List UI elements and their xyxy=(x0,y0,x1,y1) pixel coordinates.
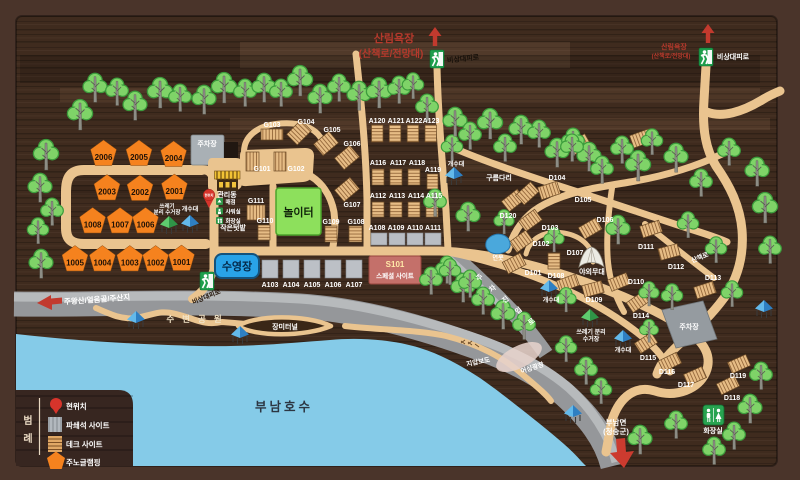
svg-text:A106: A106 xyxy=(325,282,342,289)
svg-text:G106: G106 xyxy=(343,141,360,148)
svg-text:A116: A116 xyxy=(370,160,386,167)
svg-text:G107: G107 xyxy=(343,202,360,209)
svg-text:개수대: 개수대 xyxy=(182,205,199,213)
svg-text:D116: D116 xyxy=(659,369,675,376)
svg-text:A119: A119 xyxy=(425,167,441,174)
svg-text:A118: A118 xyxy=(409,160,425,167)
svg-text:A107: A107 xyxy=(346,282,363,289)
svg-text:1006: 1006 xyxy=(137,221,155,230)
svg-text:산림욕장: 산림욕장 xyxy=(661,42,687,51)
svg-text:1003: 1003 xyxy=(121,259,139,268)
svg-text:D102: D102 xyxy=(533,241,550,248)
svg-text:G111: G111 xyxy=(248,198,264,205)
svg-text:D101: D101 xyxy=(525,270,542,277)
svg-text:D118: D118 xyxy=(724,395,740,402)
svg-text:A105: A105 xyxy=(304,282,321,289)
svg-text:G110: G110 xyxy=(257,218,274,225)
svg-text:D103: D103 xyxy=(542,225,559,232)
svg-text:G103: G103 xyxy=(263,122,280,129)
svg-text:수거장: 수거장 xyxy=(583,335,600,343)
svg-text:A111: A111 xyxy=(425,225,441,232)
svg-text:D105: D105 xyxy=(575,197,592,204)
svg-text:파쇄석 사이트: 파쇄석 사이트 xyxy=(66,420,110,430)
svg-text:쓰레기: 쓰레기 xyxy=(159,202,174,210)
svg-text:샤워실: 샤워실 xyxy=(226,208,241,216)
svg-text:현위치: 현위치 xyxy=(66,401,87,411)
svg-text:수영장: 수영장 xyxy=(222,259,252,273)
svg-text:개수대: 개수대 xyxy=(615,346,632,354)
svg-text:개수대: 개수대 xyxy=(543,296,560,304)
svg-text:부남면: 부남면 xyxy=(606,417,627,427)
svg-text:구름다리: 구름다리 xyxy=(486,173,512,182)
svg-text:A122: A122 xyxy=(406,118,423,125)
svg-text:A109: A109 xyxy=(388,225,405,232)
svg-text:1004: 1004 xyxy=(94,259,112,268)
svg-text:D104: D104 xyxy=(549,175,566,182)
svg-text:D114: D114 xyxy=(633,313,649,320)
svg-text:D120: D120 xyxy=(500,213,517,220)
svg-text:D119: D119 xyxy=(730,373,746,380)
svg-text:연못: 연못 xyxy=(492,254,504,262)
svg-text:1008: 1008 xyxy=(84,221,102,230)
svg-text:D112: D112 xyxy=(668,264,684,271)
svg-text:A114: A114 xyxy=(408,193,424,200)
svg-text:2004: 2004 xyxy=(165,154,183,163)
svg-text:D115: D115 xyxy=(640,355,656,362)
svg-text:부남호수: 부남호수 xyxy=(255,399,313,414)
svg-text:D110: D110 xyxy=(628,279,644,286)
svg-text:야외무대: 야외무대 xyxy=(579,267,605,276)
svg-text:2003: 2003 xyxy=(98,188,116,197)
svg-text:G102: G102 xyxy=(287,166,304,173)
svg-text:비상대피로: 비상대피로 xyxy=(717,52,750,61)
svg-text:A113: A113 xyxy=(389,193,405,200)
svg-text:2005: 2005 xyxy=(130,153,148,162)
svg-text:례: 례 xyxy=(23,432,32,445)
svg-text:G105: G105 xyxy=(323,127,340,134)
svg-text:2006: 2006 xyxy=(95,153,113,162)
svg-text:A120: A120 xyxy=(369,118,386,125)
svg-text:2002: 2002 xyxy=(131,188,149,197)
svg-text:A121: A121 xyxy=(388,118,405,125)
svg-text:데크 사이트: 데크 사이트 xyxy=(66,439,103,449)
svg-text:매점: 매점 xyxy=(226,198,236,206)
svg-text:G108: G108 xyxy=(347,219,364,226)
svg-text:G109: G109 xyxy=(322,219,339,226)
svg-text:주노글램핑: 주노글램핑 xyxy=(66,457,101,467)
svg-text:장미터널: 장미터널 xyxy=(272,322,298,331)
svg-text:1001: 1001 xyxy=(173,258,191,267)
svg-text:2001: 2001 xyxy=(166,187,184,196)
svg-text:A112: A112 xyxy=(370,193,386,200)
svg-text:A104: A104 xyxy=(283,282,300,289)
svg-text:A123: A123 xyxy=(423,118,440,125)
svg-text:A103: A103 xyxy=(262,282,279,289)
svg-text:화장실: 화장실 xyxy=(226,217,241,225)
svg-text:(산책로/전망대): (산책로/전망대) xyxy=(359,47,424,60)
svg-text:S101: S101 xyxy=(386,260,405,269)
svg-text:A108: A108 xyxy=(369,225,386,232)
svg-text:D111: D111 xyxy=(638,244,654,251)
svg-text:산림욕장: 산림욕장 xyxy=(374,31,414,45)
svg-text:쓰레기 분리: 쓰레기 분리 xyxy=(576,328,605,336)
svg-text:A110: A110 xyxy=(407,225,423,232)
svg-text:(청송군): (청송군) xyxy=(603,426,629,436)
svg-text:D109: D109 xyxy=(586,297,603,304)
svg-text:주차장: 주차장 xyxy=(197,139,217,148)
svg-text:D106: D106 xyxy=(597,217,614,224)
svg-text:1007: 1007 xyxy=(111,221,129,230)
svg-text:A115: A115 xyxy=(426,193,442,200)
svg-text:D107: D107 xyxy=(567,250,584,257)
svg-text:화장실: 화장실 xyxy=(703,426,722,435)
svg-text:현위치: 현위치 xyxy=(205,193,214,198)
svg-text:범: 범 xyxy=(23,414,32,427)
svg-text:1002: 1002 xyxy=(147,259,165,268)
svg-text:분리 수거장: 분리 수거장 xyxy=(154,208,181,216)
svg-text:개수대: 개수대 xyxy=(448,160,465,168)
svg-text:놀이터: 놀이터 xyxy=(283,205,313,219)
svg-text:관리동: 관리동 xyxy=(217,190,237,199)
svg-text:A117: A117 xyxy=(390,160,406,167)
svg-text:(산책로/전망대): (산책로/전망대) xyxy=(652,52,691,60)
svg-text:G101: G101 xyxy=(253,166,270,173)
svg-text:수변공원: 수변공원 xyxy=(166,314,229,324)
svg-text:스페셜 사이트: 스페셜 사이트 xyxy=(376,271,414,280)
svg-text:G104: G104 xyxy=(297,119,314,126)
svg-text:주차장: 주차장 xyxy=(679,322,699,331)
svg-text:D113: D113 xyxy=(705,275,721,282)
svg-text:1005: 1005 xyxy=(66,259,84,268)
svg-text:D117: D117 xyxy=(678,382,694,389)
svg-text:작은텃밭: 작은텃밭 xyxy=(220,223,246,232)
svg-text:D108: D108 xyxy=(548,273,565,280)
